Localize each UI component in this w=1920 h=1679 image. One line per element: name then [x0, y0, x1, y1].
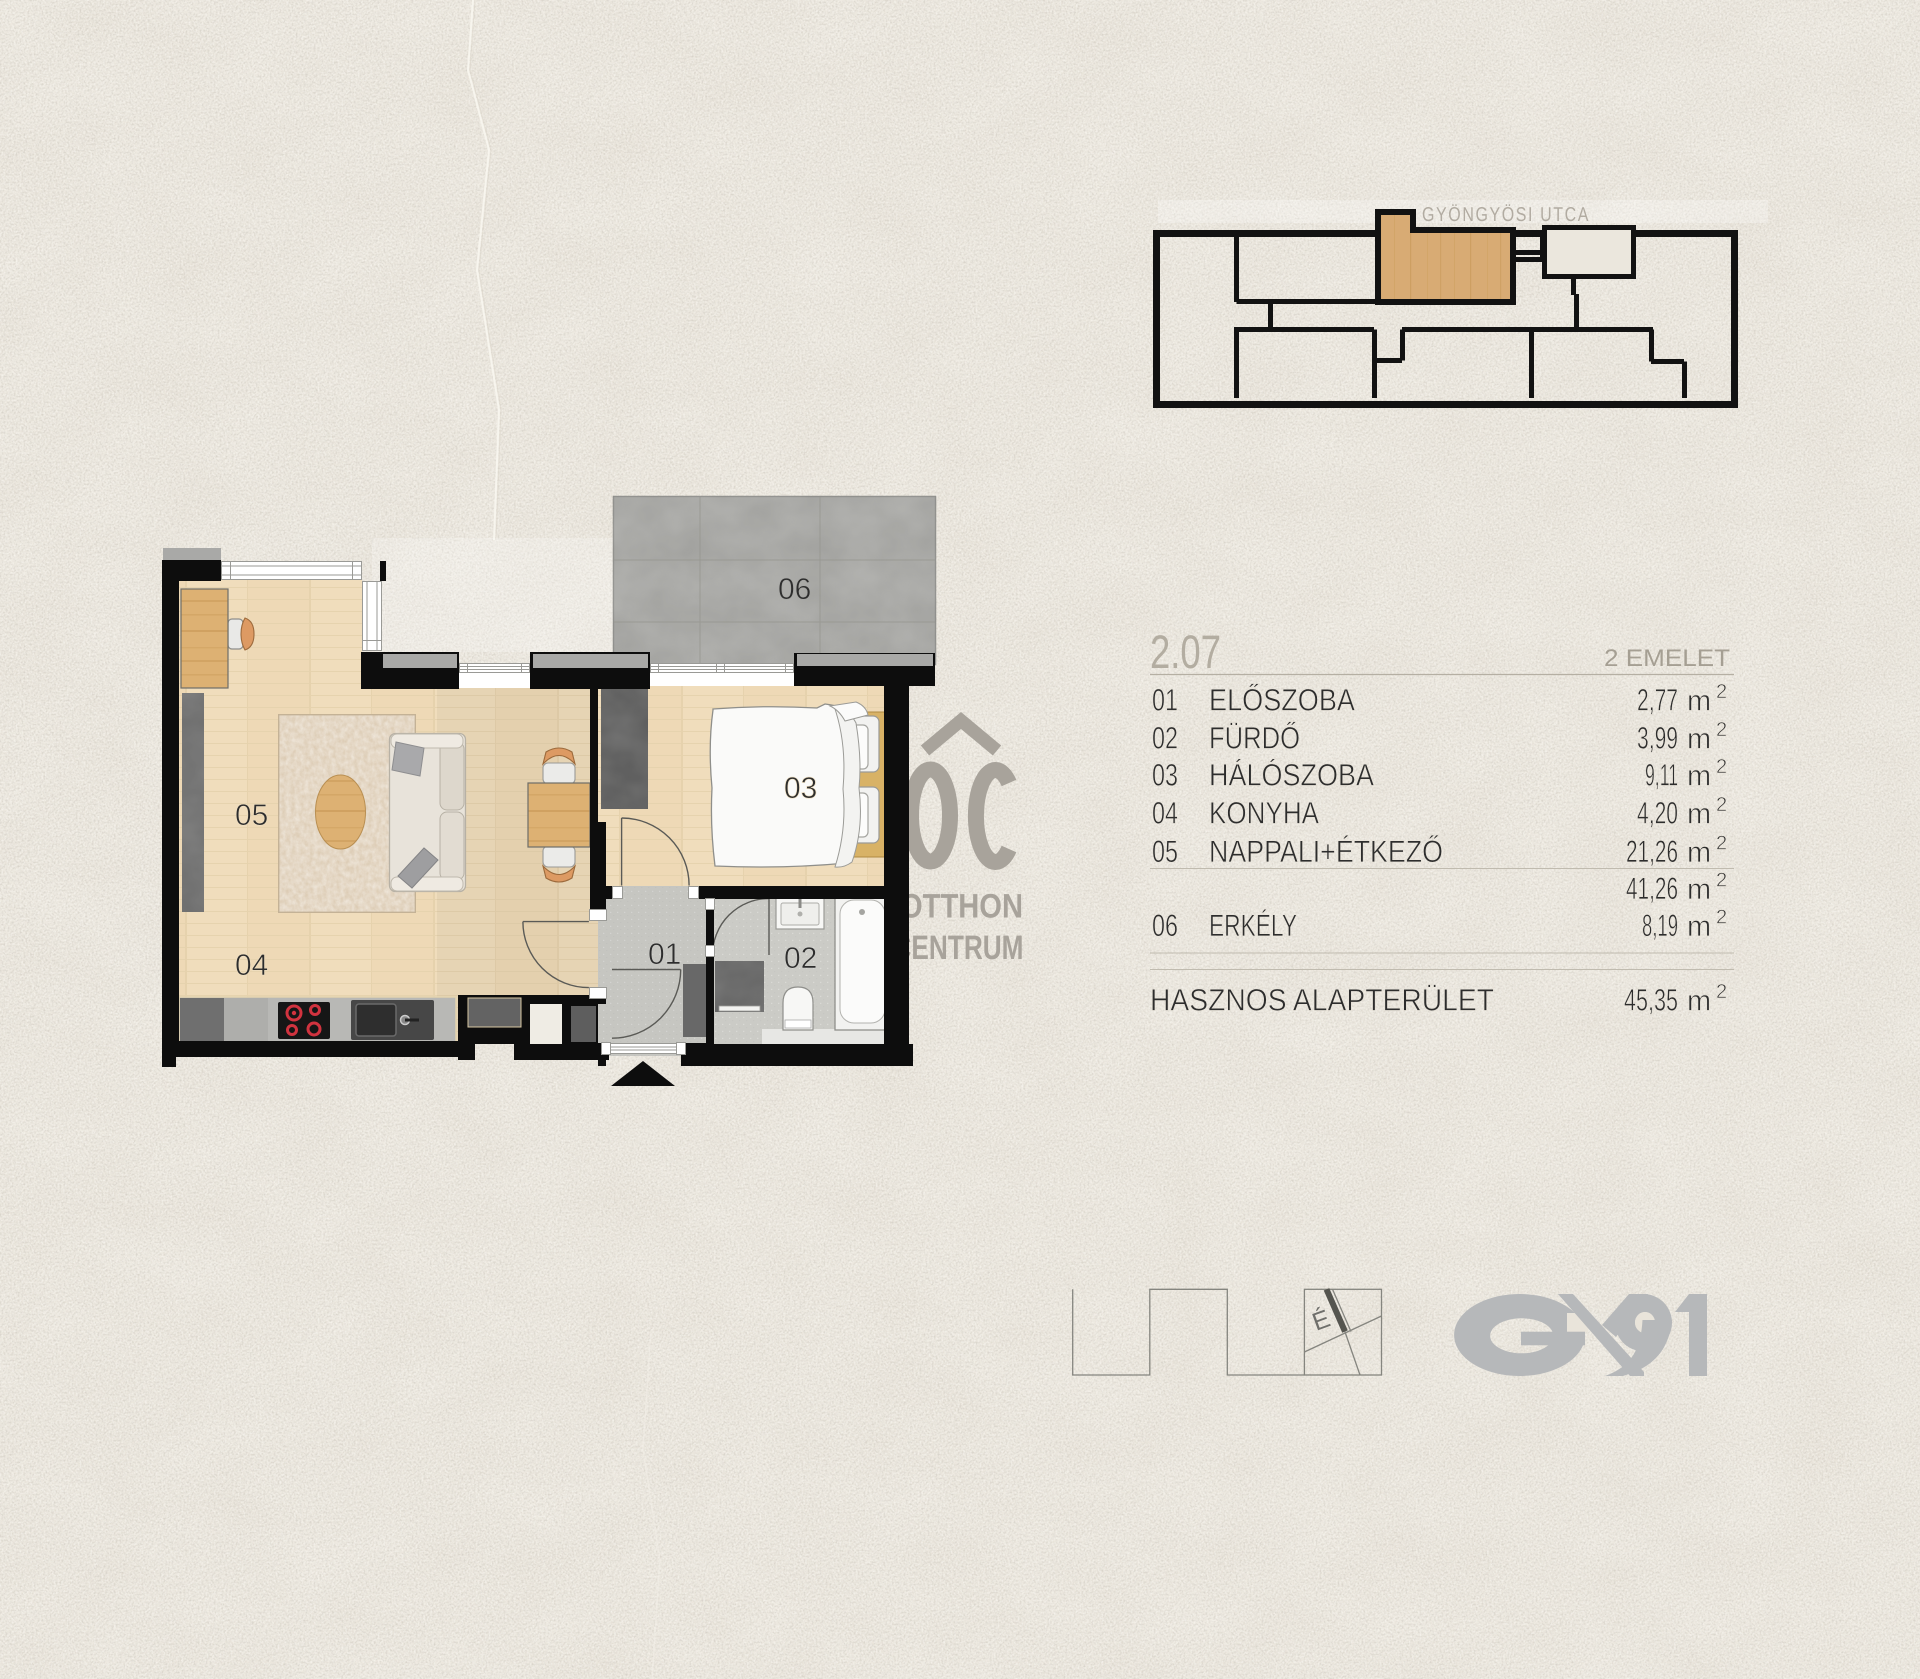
svg-text:04: 04 — [235, 949, 268, 982]
svg-text:m: m — [1687, 986, 1711, 1018]
svg-text:9,11: 9,11 — [1645, 758, 1678, 793]
svg-text:m: m — [1687, 911, 1711, 943]
svg-text:OTTHON: OTTHON — [900, 888, 1023, 926]
svg-text:m: m — [1687, 799, 1711, 831]
svg-text:m: m — [1687, 724, 1711, 756]
svg-text:GYÖNGYÖSI UTCA: GYÖNGYÖSI UTCA — [1422, 204, 1590, 226]
svg-text:ELŐSZOBA: ELŐSZOBA — [1209, 683, 1355, 718]
svg-text:2: 2 — [1716, 681, 1727, 703]
svg-text:02: 02 — [784, 942, 817, 975]
svg-text:2: 2 — [1716, 981, 1727, 1003]
svg-text:HASZNOS ALAPTERÜLET: HASZNOS ALAPTERÜLET — [1150, 983, 1494, 1018]
svg-text:06: 06 — [1152, 908, 1178, 943]
svg-text:3,99: 3,99 — [1637, 721, 1678, 756]
svg-text:NAPPALI+ÉTKEZŐ: NAPPALI+ÉTKEZŐ — [1209, 834, 1443, 869]
svg-text:2: 2 — [1716, 907, 1727, 929]
svg-text:2: 2 — [1716, 794, 1727, 816]
svg-text:03: 03 — [784, 772, 817, 805]
svg-text:m: m — [1687, 874, 1711, 906]
svg-text:03: 03 — [1152, 758, 1178, 793]
svg-text:2.07: 2.07 — [1150, 625, 1221, 678]
svg-text:04: 04 — [1152, 796, 1178, 831]
svg-text:41,26: 41,26 — [1626, 871, 1678, 906]
svg-text:01: 01 — [1152, 683, 1178, 718]
svg-text:2: 2 — [1716, 756, 1727, 778]
svg-text:2: 2 — [1716, 870, 1727, 892]
svg-text:m: m — [1687, 837, 1711, 869]
svg-text:2: 2 — [1716, 719, 1727, 741]
svg-text:FÜRDŐ: FÜRDŐ — [1209, 721, 1300, 756]
svg-text:01: 01 — [648, 938, 681, 971]
svg-text:06: 06 — [778, 573, 811, 606]
svg-text:KONYHA: KONYHA — [1209, 796, 1319, 831]
svg-text:m: m — [1687, 686, 1711, 718]
svg-text:8,19: 8,19 — [1642, 908, 1678, 943]
svg-text:HÁLÓSZOBA: HÁLÓSZOBA — [1209, 758, 1374, 793]
svg-text:CENTRUM: CENTRUM — [893, 929, 1024, 967]
svg-text:4,20: 4,20 — [1637, 796, 1678, 831]
svg-text:2 EMELET: 2 EMELET — [1604, 645, 1730, 672]
svg-text:2,77: 2,77 — [1637, 683, 1678, 718]
svg-text:02: 02 — [1152, 721, 1178, 756]
svg-text:21,26: 21,26 — [1626, 834, 1678, 869]
svg-text:45,35: 45,35 — [1624, 983, 1678, 1018]
svg-text:ERKÉLY: ERKÉLY — [1209, 908, 1297, 943]
svg-text:m: m — [1687, 761, 1711, 793]
svg-text:05: 05 — [235, 799, 268, 832]
svg-text:2: 2 — [1716, 832, 1727, 854]
svg-text:05: 05 — [1152, 834, 1178, 869]
